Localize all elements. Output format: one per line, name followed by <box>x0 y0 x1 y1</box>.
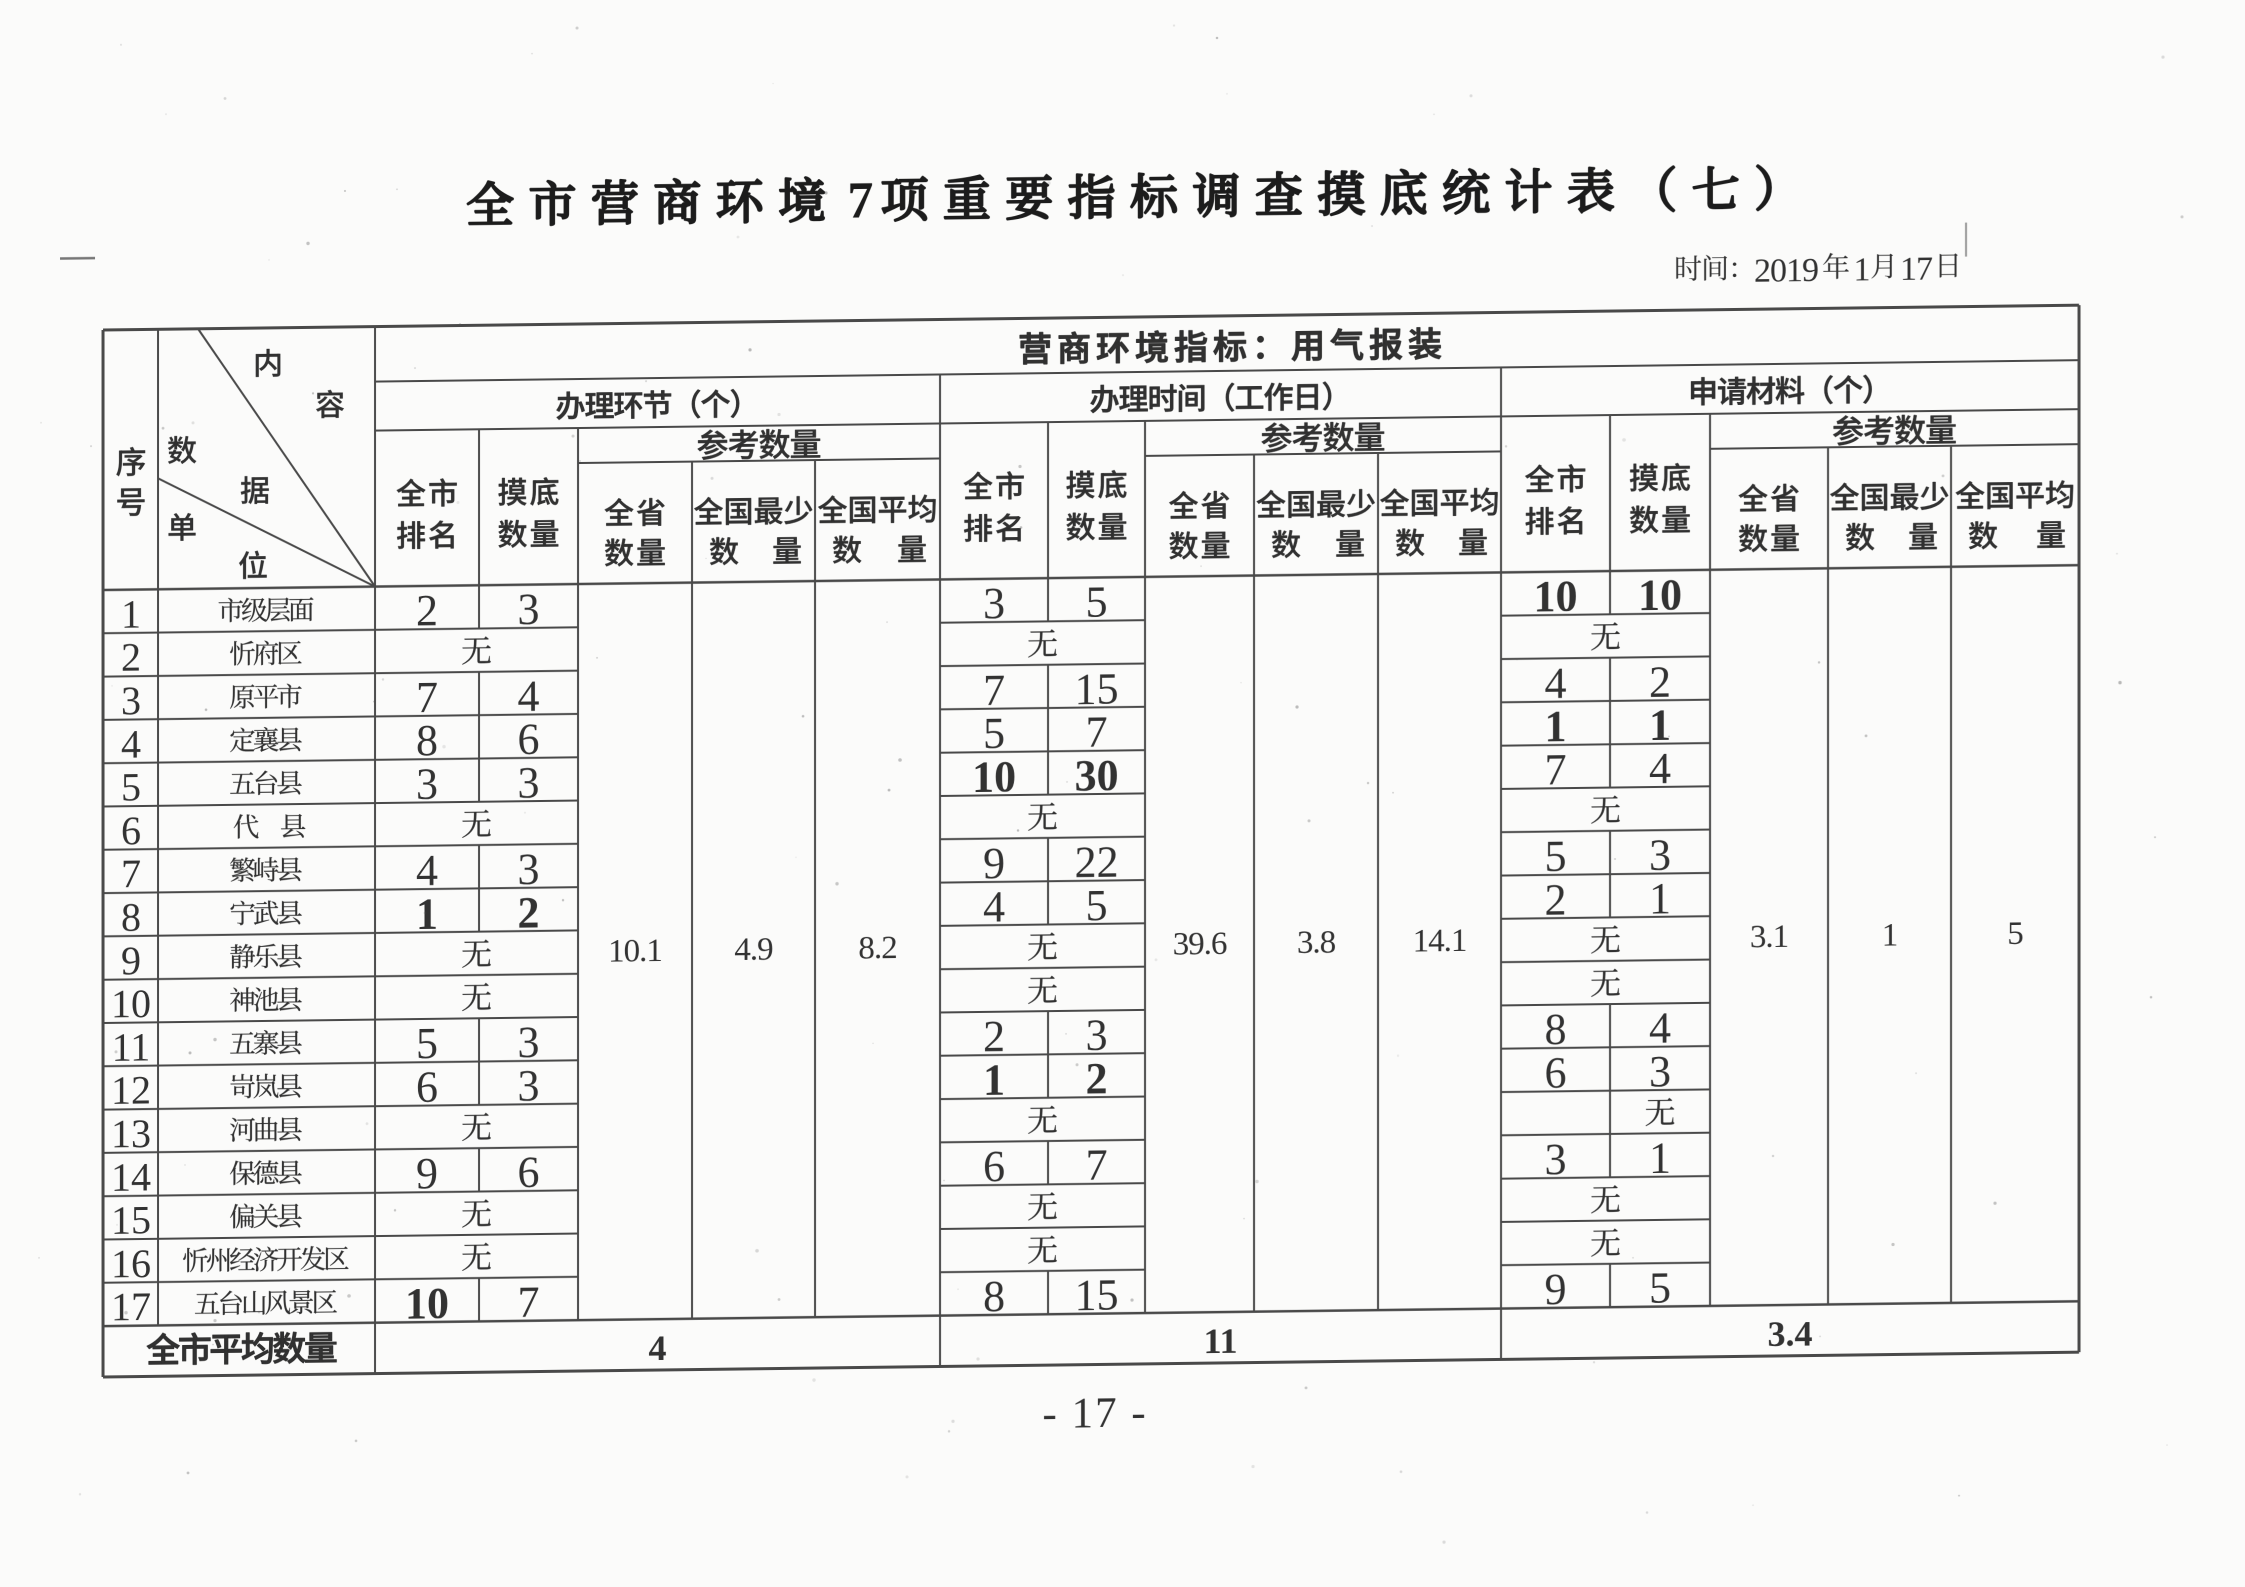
svg-text:3: 3 <box>1649 830 1671 879</box>
svg-text:- 17 -: - 17 - <box>1042 1390 1147 1438</box>
svg-text:3: 3 <box>121 678 141 723</box>
svg-text:4: 4 <box>1649 744 1671 793</box>
svg-text:3: 3 <box>1086 1011 1108 1060</box>
svg-text:3: 3 <box>1545 1135 1567 1184</box>
svg-text:8: 8 <box>416 716 438 765</box>
svg-text:8: 8 <box>983 1272 1005 1321</box>
svg-text:4: 4 <box>649 1328 667 1368</box>
svg-text:5: 5 <box>416 1019 438 1068</box>
svg-text:9: 9 <box>416 1149 438 1198</box>
svg-text:2: 2 <box>1086 1054 1108 1103</box>
svg-text:5: 5 <box>121 765 141 810</box>
svg-text:2: 2 <box>1545 875 1567 924</box>
svg-text:1: 1 <box>416 889 438 938</box>
svg-text:17: 17 <box>111 1284 151 1330</box>
svg-text:2: 2 <box>518 888 540 937</box>
svg-text:2: 2 <box>416 586 438 635</box>
svg-text:1: 1 <box>1649 874 1671 923</box>
svg-text:6: 6 <box>416 1062 438 1111</box>
svg-text:6: 6 <box>121 808 141 853</box>
svg-text:10: 10 <box>111 981 151 1027</box>
svg-text:2: 2 <box>983 1012 1005 1061</box>
svg-text:4.9: 4.9 <box>734 931 773 967</box>
svg-text:3: 3 <box>518 758 540 807</box>
svg-text:7: 7 <box>518 1278 540 1327</box>
svg-text:7: 7 <box>983 665 1005 714</box>
svg-text:3: 3 <box>518 1061 540 1110</box>
svg-text:1: 1 <box>1545 702 1567 751</box>
svg-text:6: 6 <box>518 1148 540 1197</box>
svg-text:7: 7 <box>121 851 141 896</box>
svg-text:6: 6 <box>1545 1048 1567 1097</box>
svg-text:4: 4 <box>1545 658 1567 707</box>
svg-text:7: 7 <box>1086 707 1108 756</box>
svg-text:39.6: 39.6 <box>1173 926 1227 963</box>
svg-text:10: 10 <box>972 752 1016 802</box>
svg-text:3.4: 3.4 <box>1768 1313 1813 1354</box>
svg-text:10: 10 <box>1638 570 1682 620</box>
svg-text:6: 6 <box>518 715 540 764</box>
svg-text:11: 11 <box>112 1024 151 1069</box>
svg-text:4: 4 <box>416 846 438 895</box>
svg-text:10: 10 <box>405 1279 449 1329</box>
svg-text:1: 1 <box>1649 1133 1671 1182</box>
svg-text:4: 4 <box>983 882 1005 931</box>
svg-text:17: 17 <box>1900 250 1933 287</box>
svg-text:5: 5 <box>2007 916 2023 952</box>
svg-text:6: 6 <box>983 1142 1005 1191</box>
svg-text:9: 9 <box>121 938 141 983</box>
svg-text:3: 3 <box>518 585 540 634</box>
svg-text:14.1: 14.1 <box>1413 923 1467 960</box>
svg-text:8: 8 <box>121 895 141 940</box>
svg-text:16: 16 <box>111 1241 151 1287</box>
svg-text:10: 10 <box>1534 572 1578 622</box>
svg-text:1: 1 <box>1882 917 1897 953</box>
svg-text:3: 3 <box>518 845 540 894</box>
svg-text:3: 3 <box>983 579 1005 628</box>
svg-text:22: 22 <box>1075 837 1119 887</box>
svg-text:3.1: 3.1 <box>1750 919 1788 955</box>
svg-text:15: 15 <box>1075 1270 1119 1320</box>
svg-text:15: 15 <box>1075 664 1119 714</box>
svg-text:2: 2 <box>1649 657 1671 706</box>
svg-text:5: 5 <box>1086 578 1108 627</box>
svg-text:1: 1 <box>1854 251 1871 288</box>
svg-text:13: 13 <box>111 1111 151 1157</box>
svg-text:5: 5 <box>1545 832 1567 881</box>
svg-text:7: 7 <box>847 172 873 229</box>
svg-text:5: 5 <box>1086 881 1108 930</box>
svg-text:5: 5 <box>1649 1263 1671 1312</box>
svg-text:14: 14 <box>111 1154 151 1200</box>
svg-text:8: 8 <box>1545 1005 1567 1054</box>
svg-text:12: 12 <box>111 1068 151 1114</box>
svg-text:30: 30 <box>1075 751 1119 801</box>
svg-text:1: 1 <box>121 591 141 636</box>
svg-text:3.8: 3.8 <box>1297 924 1336 960</box>
svg-text:1: 1 <box>983 1055 1005 1104</box>
svg-text:11: 11 <box>1203 1321 1237 1361</box>
svg-text:3: 3 <box>416 759 438 808</box>
svg-text:3: 3 <box>518 1018 540 1067</box>
svg-text:4: 4 <box>518 671 540 720</box>
svg-text:3: 3 <box>1649 1047 1671 1096</box>
svg-text:2019: 2019 <box>1754 252 1818 290</box>
svg-text:15: 15 <box>111 1197 151 1243</box>
svg-text:1: 1 <box>1649 700 1671 749</box>
svg-text:2: 2 <box>121 635 141 680</box>
svg-text:10.1: 10.1 <box>608 933 662 970</box>
svg-text:5: 5 <box>983 709 1005 758</box>
svg-text:9: 9 <box>1545 1265 1567 1314</box>
svg-text:9: 9 <box>983 839 1005 888</box>
svg-text:8.2: 8.2 <box>858 930 896 966</box>
svg-text:7: 7 <box>416 673 438 722</box>
svg-text:7: 7 <box>1545 745 1567 794</box>
svg-text:7: 7 <box>1086 1140 1108 1189</box>
svg-text:4: 4 <box>121 721 141 766</box>
svg-text:4: 4 <box>1649 1003 1671 1052</box>
